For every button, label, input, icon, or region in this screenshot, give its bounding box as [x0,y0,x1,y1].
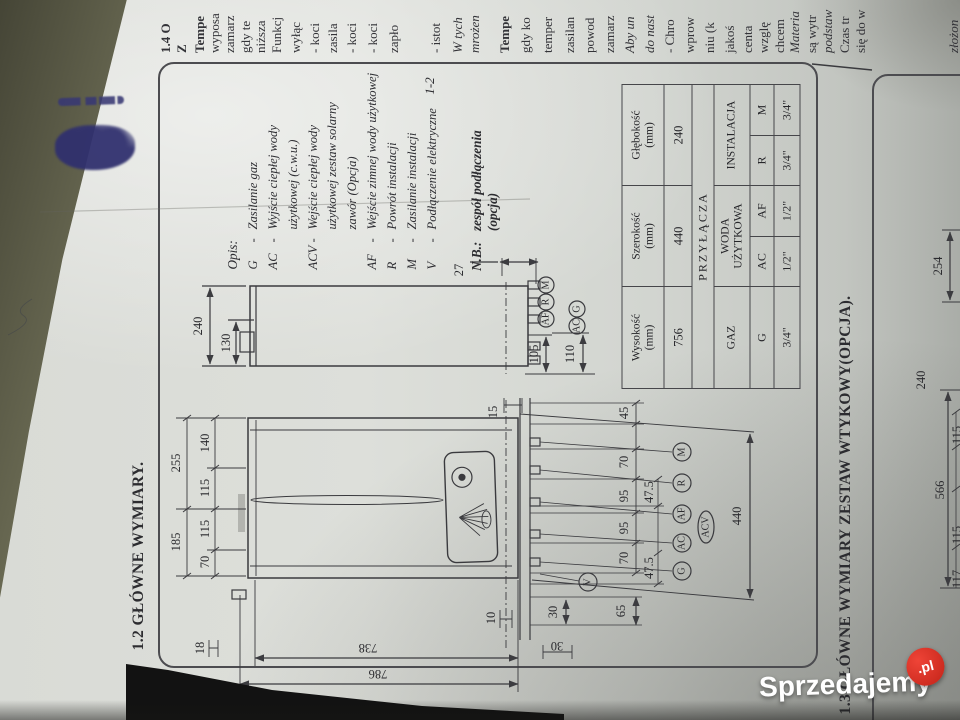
connection-legend: Opis: G- Zasilanie gaz AC- Wyjście ciepł… [223,73,443,270]
text-fragment: - Chro [662,0,678,53]
text-fragment: Tempe [192,0,208,53]
text-fragment: Z [174,0,190,53]
text-fragment: Materia [787,0,803,53]
section-1-3-frame [872,74,960,720]
text-fragment: powod [582,0,598,53]
legend-item: R- Powrót instalacji [383,73,403,270]
text-fragment: złożon [946,0,960,53]
legend-item: G- Zasilanie gaz [244,73,264,270]
text-fragment: - koci [307,0,323,53]
dimensions-table: Wysokość(mm) Szerokość(mm) Głębokość(mm)… [622,83,801,389]
table-conn-label: AF [750,185,774,236]
table-value: 440 [664,185,692,286]
text-fragment: - koci [344,0,360,53]
photographed-manual-page: 240 130 27 105 110 255 140 115 185 115 7… [0,0,960,720]
text-fragment: jakoś [722,0,738,53]
text-fragment: zasila [325,0,341,53]
ink-stamp-smudge-blob [55,125,135,170]
text-fragment: - koci [365,0,381,53]
note-text: zespół podłączenia (opcja) [469,130,501,231]
text-fragment: niższa [253,0,269,53]
legend-item: AC- Wyjście ciepłej wody użytkowej (c.w.… [264,73,304,270]
text-fragment: centa [740,0,756,53]
text-fragment: niu (k [702,0,718,53]
text-fragment: wprow [682,0,698,53]
text-fragment: mrożen [467,0,483,53]
text-fragment: Tempe [497,0,513,53]
table-header: Szerokość(mm) [622,185,664,286]
table-group: INSTALACJA [714,84,750,185]
table-conn-label: R [750,135,774,185]
table-conn-label: AC [750,237,774,287]
text-fragment: są wytr [804,0,820,53]
table-conn-label: G [750,287,774,389]
table-conn-size: 1/2" [774,185,800,236]
note-label: N.B.: [469,231,501,271]
text-fragment: wyposa [207,0,223,53]
table-section-title: PRZYŁĄCZA [692,84,714,388]
text-fragment: do nast [642,0,658,53]
text-fragment: temper [540,0,556,53]
legend-item: V- Podłączenie elektryczne [423,73,443,270]
text-fragment: gdy ko [518,0,534,53]
table-header: Wysokość(mm) [622,287,664,389]
table-conn-size: 3/4" [774,84,800,135]
text-fragment: W tych [450,0,466,53]
table-conn-size: 1/2" [774,237,800,287]
legend-item: ACV- Wejście ciepłej wody użytkowej zest… [304,73,364,270]
text-fragment: zamarz [602,0,618,53]
text-fragment: Czas tr [837,0,853,53]
table-value: 240 [664,84,692,185]
legend-item: AF- Wejście zimnej wody użytkowej [363,73,383,270]
text-fragment: się do w [853,0,869,53]
table-conn-size: 3/4" [774,287,800,389]
text-fragment: Aby un [622,0,638,53]
text-fragment: 1.4 O [158,0,174,53]
table-group: GAZ [714,287,750,389]
text-fragment: Funkcj [269,0,285,53]
text-fragment: zasilan [562,0,578,53]
watermark: Sprzedajemy .pl [756,642,960,720]
text-fragment: - istot [428,0,444,53]
note-block: N.B.: zespół podłączenia (opcja) [469,93,501,271]
legend-title: Opis: [223,73,244,270]
text-fragment: chcem [772,0,788,53]
table-conn-size: 3/4" [774,135,800,185]
text-fragment: zamarz [222,0,238,53]
text-fragment: podstaw [820,0,836,53]
table-group: WODA UŻYTKOWA [714,185,750,286]
legend-item: M- Zasilanie instalacji [403,73,423,270]
text-fragment: wzglę [756,0,772,53]
table-header: Głębokość(mm) [622,84,664,185]
table-value: 756 [664,287,692,389]
section-heading-1-2: 1.2 GŁÓWNE WYMIARY. [130,435,148,677]
text-fragment: gdy te [238,0,254,53]
text-fragment: wyłąc [288,0,304,53]
table-conn-label: M [750,84,774,135]
text-fragment: zapło [386,0,402,53]
